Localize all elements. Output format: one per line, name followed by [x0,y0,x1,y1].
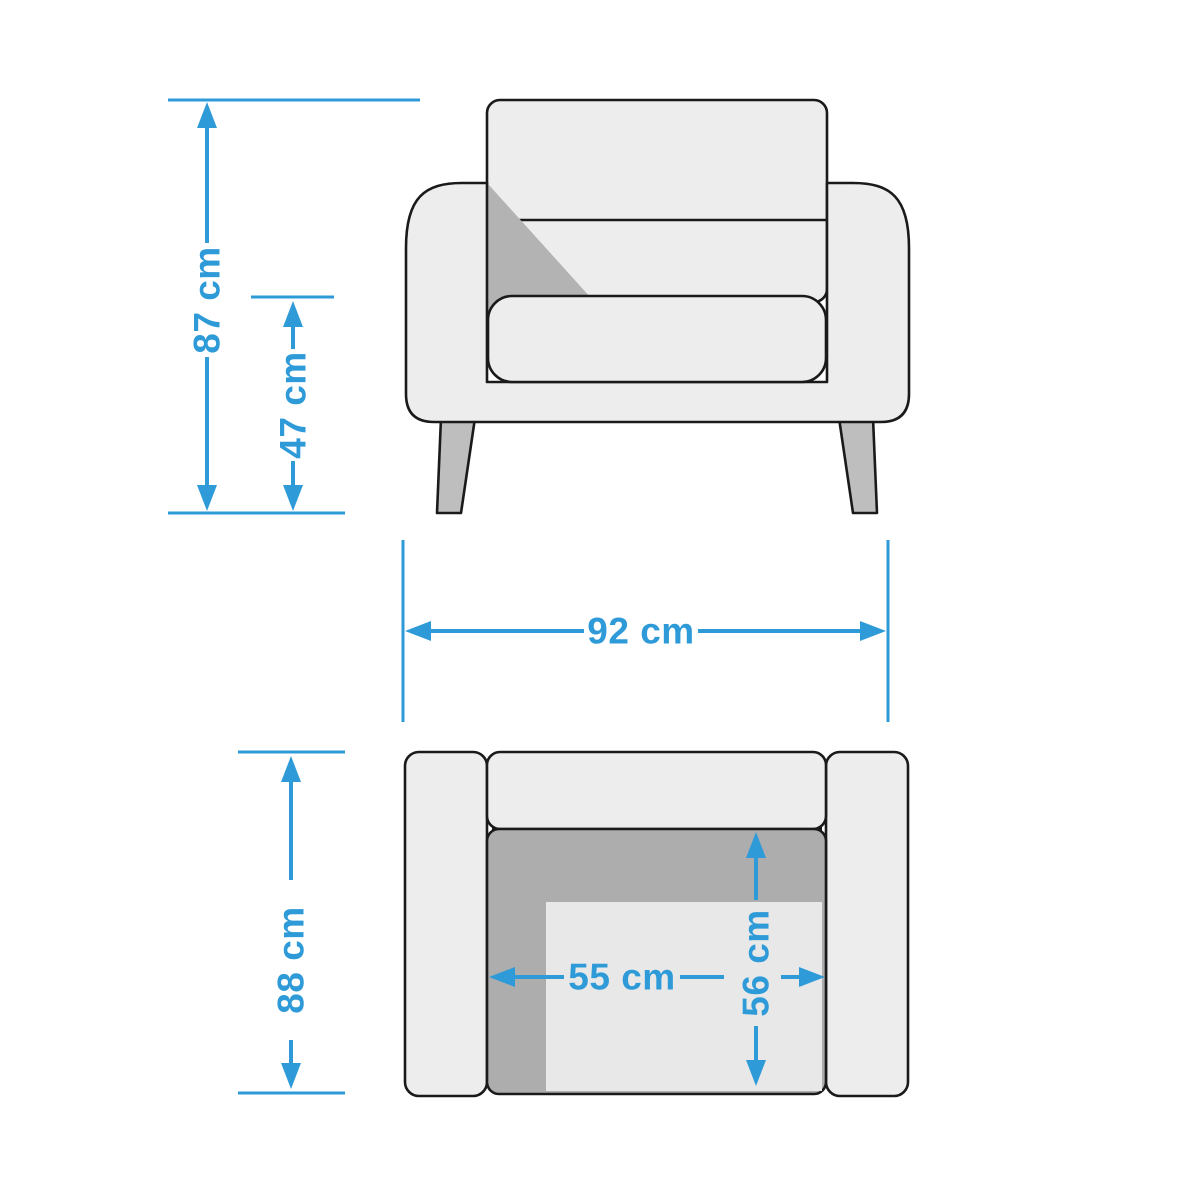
front-seat-cushion [488,296,826,382]
diagram-canvas: 87 cm 47 cm 92 cm [0,0,1200,1200]
arrow-up-icon [197,102,217,128]
dimension-label-seat-depth: 56 cm [736,909,777,1016]
armchair-dimension-diagram: 87 cm 47 cm 92 cm [0,0,1200,1200]
arrow-down-icon [281,1063,301,1089]
armchair-top-view [405,752,908,1096]
arrow-down-icon [283,485,303,511]
arrow-right-icon [860,621,886,641]
dimension-overall-depth: 88 cm [238,752,345,1093]
arrow-down-icon [197,485,217,511]
front-left-leg [437,418,475,513]
armchair-front-view [406,100,909,513]
dimension-seat-height: 47 cm [251,297,334,511]
dimension-label-seat-width: 55 cm [568,957,675,998]
top-backrest [487,752,826,829]
arrow-left-icon [405,621,431,641]
dimension-label-seat-height: 47 cm [273,351,314,458]
dimension-label-overall-height: 87 cm [187,246,228,353]
arrow-up-icon [283,301,303,327]
dimension-label-overall-width: 92 cm [587,611,694,652]
front-right-leg [839,418,877,513]
top-left-armrest [405,752,487,1096]
arrow-up-icon [281,756,301,782]
dimension-overall-width: 92 cm [403,540,888,722]
dimension-label-overall-depth: 88 cm [271,906,312,1013]
top-right-armrest [826,752,908,1096]
